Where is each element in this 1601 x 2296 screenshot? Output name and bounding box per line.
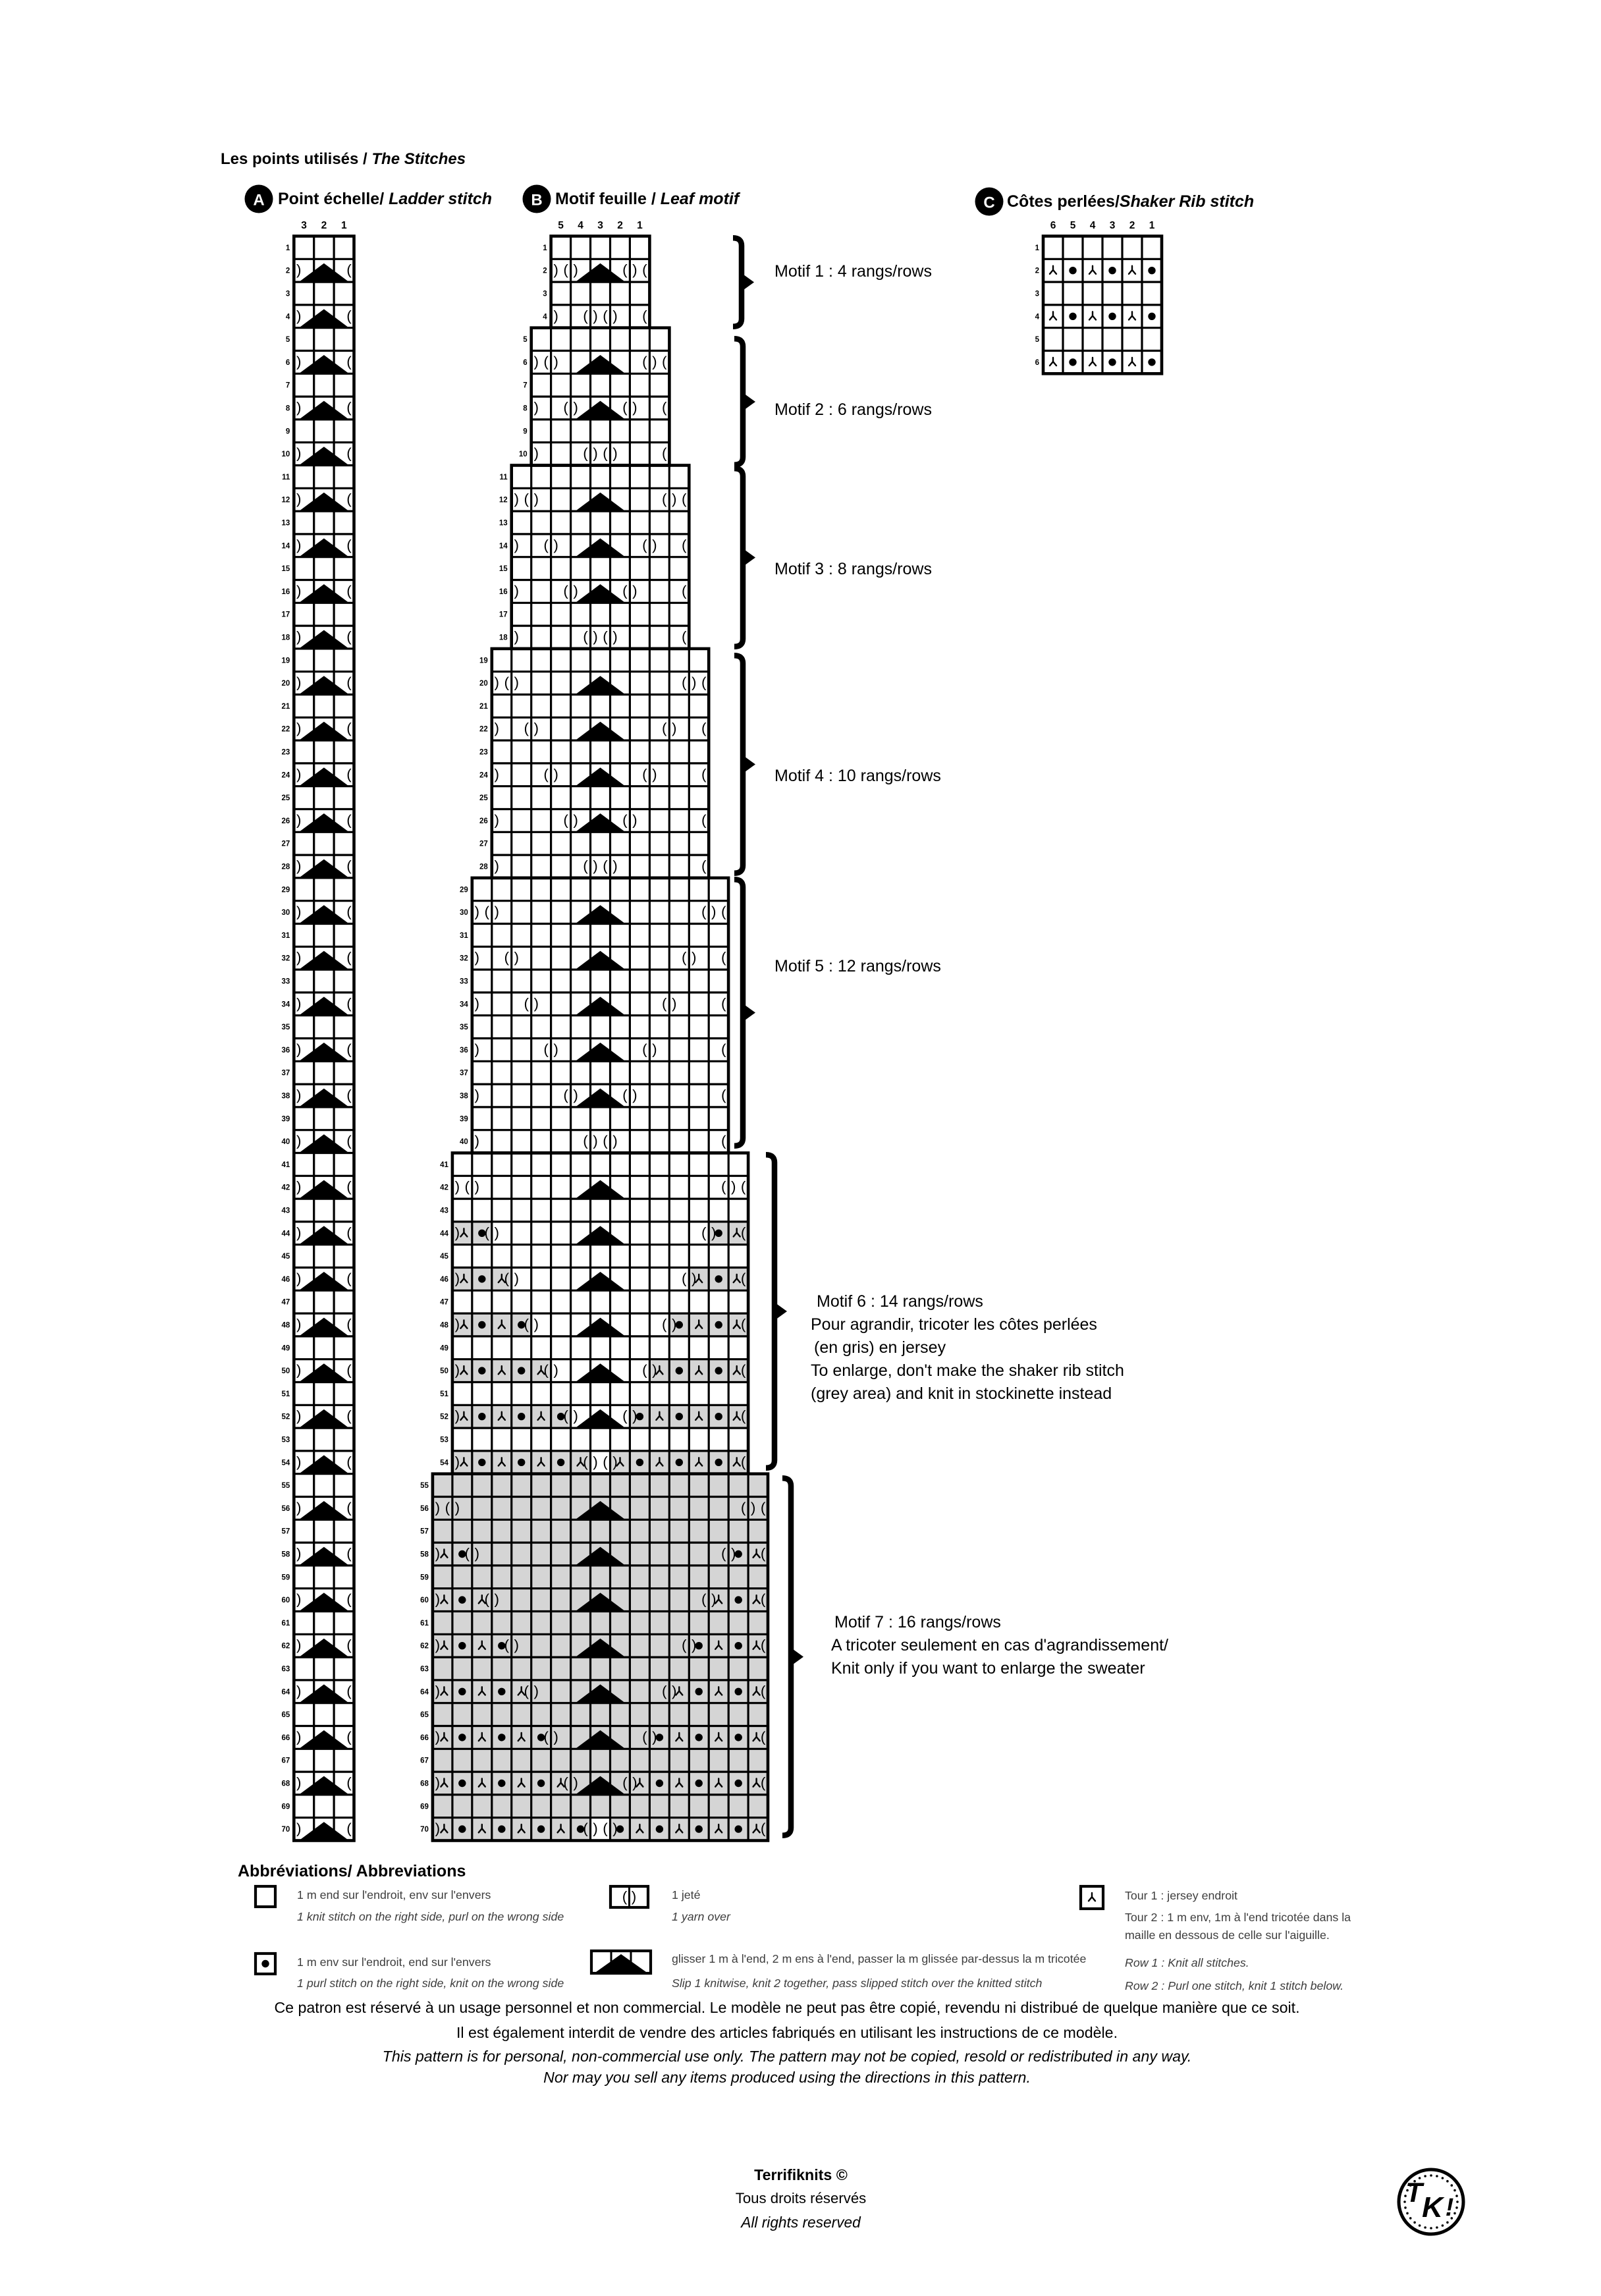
svg-text:): ) [475,995,480,1012]
svg-text:(: ( [543,537,549,553]
svg-text:23: 23 [282,749,290,757]
svg-text:(: ( [662,399,667,416]
svg-text:(: ( [524,1683,529,1699]
svg-text:Motif 1 : 4 rangs/rows: Motif 1 : 4 rangs/rows [774,262,932,281]
svg-text:(: ( [346,1041,352,1057]
svg-text:): ) [475,1041,480,1057]
svg-text:19: 19 [282,657,290,665]
svg-text:(: ( [662,995,667,1012]
svg-text:): ) [672,720,677,736]
svg-text:6: 6 [1035,359,1039,367]
svg-text:): ) [296,1270,302,1286]
svg-text:): ) [495,811,500,828]
svg-text:): ) [553,353,558,369]
svg-text:): ) [296,1178,302,1195]
svg-text:(: ( [721,995,726,1012]
svg-text:51: 51 [282,1390,290,1398]
svg-text:5: 5 [523,336,528,344]
svg-text:43: 43 [440,1207,448,1215]
svg-text:2: 2 [543,267,547,275]
svg-text:12: 12 [499,497,508,505]
svg-text:37: 37 [282,1070,290,1078]
svg-text:(: ( [583,1133,588,1149]
svg-text:): ) [296,1728,302,1745]
svg-text:(: ( [642,1362,647,1379]
svg-text:): ) [475,1087,480,1103]
svg-text:): ) [731,1178,736,1195]
svg-text:(: ( [622,1087,628,1103]
svg-text:24: 24 [479,771,488,779]
svg-text:(: ( [583,1454,588,1470]
svg-text:): ) [296,537,302,553]
svg-text:16: 16 [499,588,508,596]
svg-text:(: ( [701,904,707,920]
svg-text:(: ( [701,811,707,828]
svg-text:(: ( [346,1408,352,1424]
svg-text:61: 61 [282,1620,290,1627]
svg-text:61: 61 [420,1620,429,1627]
svg-text:41: 41 [282,1161,290,1169]
svg-text:): ) [296,1087,302,1103]
svg-text:35: 35 [282,1024,290,1031]
svg-text:): ) [612,628,618,645]
svg-text:26: 26 [479,817,488,825]
svg-text:(: ( [346,537,352,553]
svg-text:maille en dessous de celle sur: maille en dessous de celle sur l'aiguill… [1125,1928,1330,1942]
svg-text:(: ( [682,582,687,599]
svg-text:): ) [711,904,717,920]
svg-text:5: 5 [286,336,290,344]
svg-text:): ) [296,582,302,599]
svg-text:(: ( [504,1270,509,1286]
svg-text:Tous droits réservés: Tous droits réservés [736,2190,867,2206]
svg-text:): ) [692,674,697,691]
svg-text:): ) [296,1591,302,1608]
svg-text:(: ( [346,1270,352,1286]
svg-text:Slip 1 knitwise, knit 2 togeth: Slip 1 knitwise, knit 2 together, pass s… [672,1977,1042,1990]
svg-text:(en gris) en jersey: (en gris) en jersey [814,1338,946,1357]
svg-text:Row 2 : Purl one stitch, knit: Row 2 : Purl one stitch, knit 1 stitch b… [1125,1979,1343,1992]
svg-text:(: ( [346,720,352,736]
svg-text:22: 22 [282,726,290,734]
svg-text:(: ( [346,582,352,599]
svg-text:44: 44 [440,1230,448,1238]
svg-text:): ) [652,1362,657,1379]
svg-text:56: 56 [420,1505,429,1513]
svg-text:B: B [531,192,542,209]
svg-text:): ) [632,811,638,828]
svg-text:70: 70 [282,1826,290,1834]
svg-text:(: ( [682,491,687,507]
svg-text:): ) [435,1820,441,1837]
svg-text:45: 45 [440,1253,448,1261]
svg-text:): ) [296,491,302,507]
svg-text:(: ( [721,949,726,966]
svg-text:): ) [553,1041,558,1057]
svg-text:): ) [632,582,638,599]
svg-text:50: 50 [440,1367,448,1375]
svg-text:(: ( [346,674,352,691]
svg-text:5: 5 [558,220,564,231]
svg-text:Motif 3 : 8 rangs/rows: Motif 3 : 8 rangs/rows [774,560,932,578]
svg-text:): ) [296,399,302,416]
svg-text:34: 34 [282,1000,290,1008]
svg-text:(: ( [346,1178,352,1195]
svg-text:6: 6 [286,359,290,367]
svg-text:(: ( [741,1499,746,1516]
svg-text:1: 1 [1149,220,1155,231]
svg-text:28: 28 [282,863,290,871]
svg-text:): ) [296,1683,302,1699]
svg-text:): ) [435,1683,441,1699]
svg-text:(: ( [662,491,667,507]
svg-text:): ) [296,1224,302,1241]
svg-text:(: ( [662,720,667,736]
svg-text:(: ( [682,628,687,645]
svg-text:2: 2 [1129,220,1135,231]
svg-text:31: 31 [282,932,290,940]
svg-text:1 m end sur l'endroit, env sur: 1 m end sur l'endroit, env sur l'envers [297,1888,491,1901]
svg-text:3: 3 [286,290,290,298]
svg-text:63: 63 [282,1666,290,1674]
svg-text:(: ( [603,1454,608,1470]
svg-text:): ) [475,904,480,920]
svg-text:(: ( [563,1087,568,1103]
svg-text:(: ( [662,445,667,462]
svg-text:): ) [573,1774,578,1791]
svg-text:): ) [296,1820,302,1837]
svg-text:(: ( [524,995,529,1012]
svg-text:(: ( [603,308,608,324]
svg-text:65: 65 [420,1711,429,1719]
svg-text:(: ( [346,1637,352,1653]
svg-text:(: ( [622,582,628,599]
svg-text:27: 27 [282,840,290,848]
svg-text:): ) [632,1888,637,1905]
svg-text:This pattern is for personal,: This pattern is for personal, non-commer… [383,2048,1192,2065]
svg-text:2: 2 [286,267,290,275]
svg-text:(: ( [622,399,628,416]
svg-text:30: 30 [282,909,290,917]
svg-text:7: 7 [286,382,290,390]
svg-text:(: ( [662,1316,667,1332]
svg-text:42: 42 [282,1184,290,1192]
svg-text:(: ( [682,537,687,553]
svg-text:47: 47 [440,1299,448,1307]
svg-text:): ) [455,1316,460,1332]
svg-text:29: 29 [460,886,468,894]
svg-text:20: 20 [282,680,290,688]
svg-text:(: ( [662,353,667,369]
svg-text:): ) [455,1270,460,1286]
svg-text:40: 40 [282,1138,290,1146]
svg-text:(: ( [346,904,352,920]
svg-text:): ) [475,949,480,966]
svg-text:(: ( [445,1499,450,1516]
svg-text:37: 37 [460,1070,468,1078]
svg-text:(: ( [682,949,687,966]
svg-text:): ) [652,1041,657,1057]
svg-text:(: ( [524,491,529,507]
svg-text:C: C [983,194,994,212]
svg-text:57: 57 [282,1528,290,1536]
svg-text:): ) [296,811,302,828]
svg-text:(: ( [721,1545,726,1562]
svg-text:59: 59 [282,1573,290,1581]
svg-text:): ) [495,1591,500,1608]
svg-text:): ) [296,445,302,462]
svg-text:(: ( [563,811,568,828]
svg-text:): ) [296,1133,302,1149]
svg-text:(: ( [563,261,568,278]
svg-text:): ) [296,949,302,966]
svg-text:(grey area) and knit in stocki: (grey area) and knit in stockinette inst… [811,1384,1112,1403]
svg-text:(: ( [583,308,588,324]
svg-text:): ) [495,904,500,920]
svg-text:(: ( [346,858,352,874]
svg-text:): ) [296,1454,302,1470]
svg-text:): ) [296,628,302,645]
svg-text:): ) [296,308,302,324]
svg-text:(: ( [346,1087,352,1103]
svg-text:66: 66 [282,1734,290,1742]
svg-text:60: 60 [420,1597,429,1604]
svg-text:55: 55 [282,1482,290,1490]
svg-text:): ) [593,1820,598,1837]
svg-text:): ) [514,491,519,507]
svg-text:): ) [296,995,302,1012]
svg-text:23: 23 [479,749,488,757]
svg-text:): ) [533,1316,539,1332]
svg-text:(: ( [346,261,352,278]
svg-text:32: 32 [460,955,468,963]
svg-text:(: ( [346,995,352,1012]
svg-text:17: 17 [282,611,290,619]
svg-text:29: 29 [282,886,290,894]
svg-text:Nor may you sell any items pro: Nor may you sell any items produced usin… [543,2069,1031,2086]
svg-text:3: 3 [597,220,603,231]
svg-text:25: 25 [479,794,488,802]
svg-text:(: ( [563,1774,568,1791]
svg-text:Motif 6 : 14 rangs/rows: Motif 6 : 14 rangs/rows [817,1292,983,1311]
svg-text:(: ( [346,353,352,369]
svg-text:): ) [455,1224,460,1241]
svg-text:Ce patron est réservé à un usa: Ce patron est réservé à un usage personn… [274,1999,1299,2016]
svg-text:(: ( [622,1774,628,1791]
svg-text:38: 38 [282,1093,290,1101]
svg-text:39: 39 [460,1115,468,1123]
svg-text:(: ( [346,766,352,782]
svg-text:(: ( [622,1408,628,1424]
svg-text:(: ( [346,1133,352,1149]
svg-text:(: ( [346,949,352,966]
svg-text:(: ( [346,399,352,416]
svg-text:): ) [533,995,539,1012]
svg-text:10: 10 [282,451,290,458]
svg-text:Knit only if you want to enlar: Knit only if you want to enlarge the swe… [831,1659,1145,1678]
svg-text:): ) [573,1087,578,1103]
svg-text:glisser 1 m à l'end, 2 m ens à: glisser 1 m à l'end, 2 m ens à l'end, pa… [672,1952,1087,1965]
svg-text:4: 4 [1090,220,1096,231]
svg-text:): ) [435,1774,441,1791]
svg-text:(: ( [721,904,726,920]
svg-text:): ) [455,1499,460,1516]
svg-text:): ) [672,491,677,507]
svg-text:): ) [652,766,657,782]
svg-text:(: ( [346,1499,352,1516]
svg-text:): ) [296,353,302,369]
svg-text:3: 3 [543,290,547,298]
svg-text:27: 27 [479,840,488,848]
svg-text:(: ( [346,628,352,645]
svg-text:(: ( [485,904,490,920]
svg-text:46: 46 [440,1276,448,1284]
svg-text:): ) [553,1362,558,1379]
svg-text:36: 36 [460,1047,468,1054]
svg-text:(: ( [346,1683,352,1699]
svg-text:14: 14 [282,542,290,550]
svg-text:): ) [533,491,539,507]
svg-text:): ) [475,1545,480,1562]
svg-text:1 knit stitch on the right sid: 1 knit stitch on the right side, purl on… [297,1910,564,1923]
svg-text:(: ( [701,720,707,736]
svg-text:): ) [652,353,657,369]
svg-text:48: 48 [440,1322,448,1330]
svg-text:): ) [455,1362,460,1379]
svg-text:(: ( [682,1637,687,1653]
svg-text:(: ( [543,353,549,369]
svg-text:(: ( [504,674,509,691]
svg-text:): ) [573,1408,578,1424]
svg-text:(: ( [603,1820,608,1837]
svg-text:64: 64 [282,1688,290,1696]
svg-text:): ) [296,1774,302,1791]
svg-text:Row 1 : Knit all stitches.: Row 1 : Knit all stitches. [1125,1956,1249,1969]
svg-text:A: A [253,192,264,209]
svg-text:(: ( [721,1133,726,1149]
svg-text:(: ( [761,1820,766,1837]
svg-text:58: 58 [420,1551,429,1559]
svg-text:): ) [514,949,519,966]
svg-text:): ) [296,1545,302,1562]
svg-text:69: 69 [282,1803,290,1811]
svg-text:1: 1 [341,220,347,231]
svg-text:1: 1 [637,220,643,231]
svg-text:): ) [672,1683,677,1699]
svg-text:47: 47 [282,1299,290,1307]
svg-text:(: ( [603,1133,608,1149]
svg-text:21: 21 [282,703,290,711]
svg-text:(: ( [583,628,588,645]
svg-text:10: 10 [519,451,528,458]
svg-text:(: ( [721,1087,726,1103]
svg-text:(: ( [761,1637,766,1653]
svg-text:25: 25 [282,794,290,802]
svg-text:1 purl stitch on the right sid: 1 purl stitch on the right side, knit on… [297,1977,564,1990]
svg-text:(: ( [346,1820,352,1837]
svg-text:): ) [672,995,677,1012]
svg-text:): ) [435,1499,441,1516]
svg-text:): ) [296,1637,302,1653]
svg-text:(: ( [346,1774,352,1791]
svg-text:Côtes perlées/Shaker Rib stitc: Côtes perlées/Shaker Rib stitch [1007,192,1254,211]
svg-text:): ) [296,1408,302,1424]
svg-text:59: 59 [420,1573,429,1581]
svg-text:): ) [533,445,539,462]
svg-text:(: ( [603,445,608,462]
svg-text:): ) [514,1270,519,1286]
svg-text:): ) [296,1499,302,1516]
svg-text:(: ( [642,1041,647,1057]
svg-text:1: 1 [1035,244,1040,252]
svg-text:12: 12 [282,497,290,505]
svg-text:): ) [435,1728,441,1745]
svg-text:4: 4 [286,313,290,321]
svg-text:(: ( [346,491,352,507]
svg-text:54: 54 [440,1459,448,1467]
svg-text:11: 11 [500,474,508,481]
svg-text:4: 4 [543,313,547,321]
svg-text:): ) [514,537,519,553]
svg-text:(: ( [622,1888,628,1905]
svg-text:Abbréviations/ Abbreviations: Abbréviations/ Abbreviations [238,1862,466,1880]
svg-text:11: 11 [282,474,290,481]
svg-text:To enlarge, don't make the sha: To enlarge, don't make the shaker rib st… [811,1361,1124,1380]
svg-text:(: ( [346,1454,352,1470]
svg-text:): ) [632,261,638,278]
svg-text:): ) [296,1362,302,1379]
svg-text:): ) [593,1133,598,1149]
svg-text:): ) [553,261,558,278]
svg-text:): ) [573,399,578,416]
svg-text:24: 24 [282,771,290,779]
svg-text:(: ( [346,308,352,324]
svg-text:46: 46 [282,1276,290,1284]
svg-text:39: 39 [282,1115,290,1123]
svg-text:1 m env sur l'endroit, end sur: 1 m env sur l'endroit, end sur l'envers [297,1955,491,1969]
svg-text:): ) [435,1591,441,1608]
svg-text:18: 18 [499,634,508,642]
svg-text:2: 2 [321,220,327,231]
svg-text:(: ( [346,811,352,828]
svg-text:(: ( [583,858,588,874]
svg-text:(: ( [603,858,608,874]
svg-text:4: 4 [1035,313,1040,321]
svg-text:30: 30 [460,909,468,917]
svg-text:): ) [514,674,519,691]
svg-text:(: ( [741,1270,746,1286]
svg-text:(: ( [346,1545,352,1562]
svg-text:(: ( [741,1362,746,1379]
svg-text:35: 35 [460,1024,468,1031]
svg-text:): ) [612,1133,618,1149]
svg-text:3: 3 [301,220,307,231]
svg-text:(: ( [642,353,647,369]
svg-text:Motif 2 : 6 rangs/rows: Motif 2 : 6 rangs/rows [774,400,932,419]
svg-text:(: ( [543,1362,549,1379]
svg-text:51: 51 [440,1390,448,1398]
svg-text:5: 5 [1035,336,1040,344]
svg-text:Motif feuille / Leaf motif: Motif feuille / Leaf motif [555,190,741,208]
svg-text:): ) [296,904,302,920]
svg-text:32: 32 [282,955,290,963]
svg-text:28: 28 [479,863,488,871]
svg-text:): ) [612,1454,618,1470]
svg-text:9: 9 [286,427,290,435]
svg-text:(: ( [622,261,628,278]
svg-text:26: 26 [282,817,290,825]
svg-text:): ) [533,720,539,736]
